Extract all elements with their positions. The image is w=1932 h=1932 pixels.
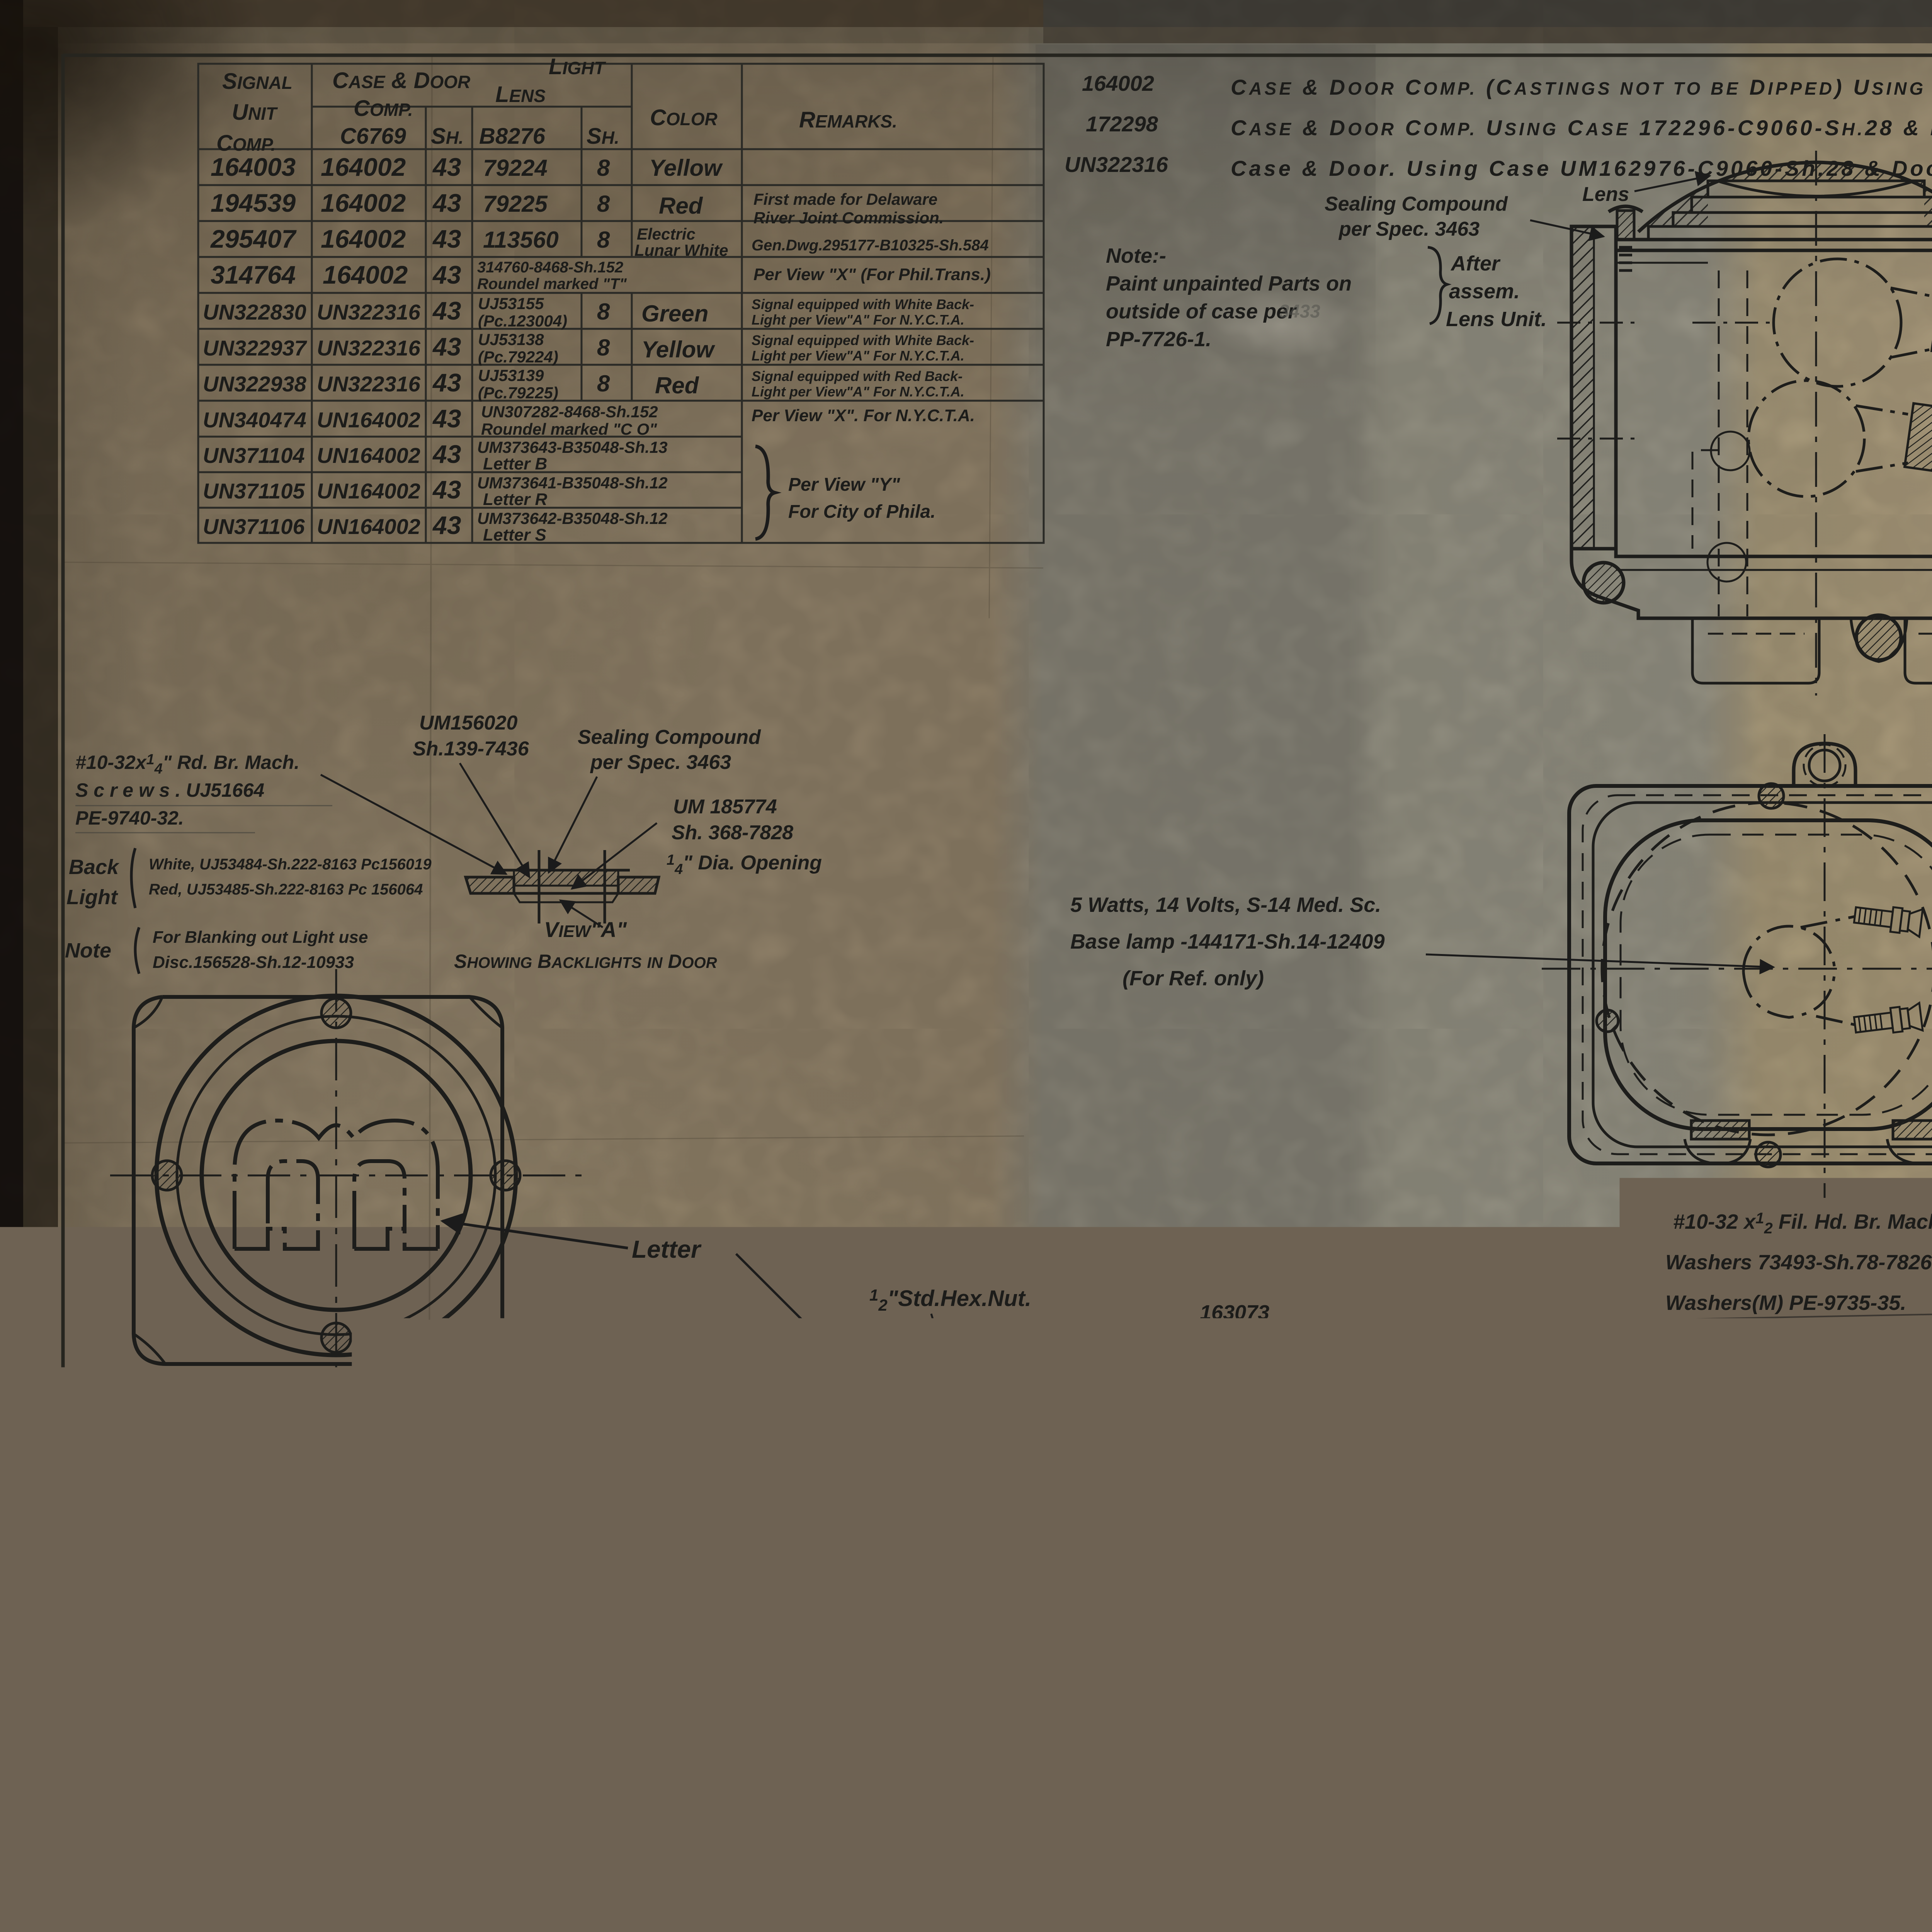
svg-text:PE-9740-32.: PE-9740-32. (75, 807, 184, 829)
svg-text:Lens Unit.: Lens Unit. (1446, 308, 1547, 331)
svg-text:COMP.: COMP. (216, 131, 276, 156)
svg-text:8: 8 (597, 155, 610, 181)
svg-text:43: 43 (432, 224, 461, 253)
svg-text:LENS: LENS (495, 82, 546, 107)
svg-text:Per View "X". For N.Y.C.T.A.: Per View "X". For N.Y.C.T.A. (752, 406, 975, 425)
svg-text:79225: 79225 (483, 191, 548, 217)
svg-text:UJ53139: UJ53139 (478, 366, 544, 384)
svg-text:Sh. 368-7828: Sh. 368-7828 (672, 821, 793, 844)
svg-text:516"x1" Rd.Hd.I.Rivets: 516"x1" Rd.Hd.I.Rivets (974, 1885, 1205, 1913)
svg-text:Roundel marked "T": Roundel marked "T" (477, 276, 627, 293)
svg-text:(Pc.79225): (Pc.79225) (478, 384, 558, 402)
svg-text:Chain added.: Chain added. (67, 1886, 82, 1932)
svg-text:Letter S: Letter S (483, 526, 546, 544)
svg-text:outside of case per: outside of case per (1106, 300, 1297, 323)
svg-text:43: 43 (432, 189, 461, 217)
svg-text:UN340474: UN340474 (203, 408, 306, 432)
svg-text:UN322316: UN322316 (317, 372, 421, 396)
svg-text:Sealing Compound: Sealing Compound (578, 726, 761, 748)
svg-text:UM 185774: UM 185774 (673, 796, 777, 818)
svg-text:43: 43 (432, 368, 461, 397)
svg-text:Letter B: Letter B (483, 454, 547, 473)
svg-text:295407: 295407 (210, 224, 297, 253)
svg-text:UN371105: UN371105 (203, 479, 305, 503)
svg-text:Red: Red (659, 193, 703, 219)
svg-text:UJ53155: UJ53155 (478, 294, 544, 313)
svg-text:Paint unpainted Parts on: Paint unpainted Parts on (1106, 272, 1352, 295)
svg-text:Sh32-12426: Sh32-12426 (759, 1852, 883, 1877)
svg-text:Signal equipped with White Bac: Signal equipped with White Back- (752, 296, 974, 312)
svg-text:C6769: C6769 (340, 124, 406, 149)
svg-text:(For Ref. only): (For Ref. only) (1122, 967, 1264, 990)
svg-text:8: 8 (597, 371, 610, 396)
svg-text:REMARKS.: REMARKS. (799, 107, 897, 133)
svg-text:43: 43 (432, 475, 461, 504)
svg-text:3433: 3433 (1279, 301, 1320, 322)
svg-text:UN164002: UN164002 (317, 514, 420, 539)
svg-text:M164461: M164461 (1808, 1903, 1898, 1927)
svg-text:Red: Red (655, 372, 699, 398)
svg-text:UN371104: UN371104 (203, 443, 305, 468)
svg-text:UM373646-B35024-Sh.9: UM373646-B35024-Sh.9 (216, 1421, 467, 1446)
svg-text:43: 43 (432, 332, 461, 361)
svg-text:M164398-001: M164398-001 (767, 1819, 905, 1844)
svg-text:For City of Phila.: For City of Phila. (788, 502, 935, 522)
svg-text:164003: 164003 (211, 153, 296, 181)
svg-text:Light per View"A" For N.Y.C.T.: Light per View"A" For N.Y.C.T.A. (752, 348, 964, 364)
svg-text:UM373642-B35048-Sh.12: UM373642-B35048-Sh.12 (477, 509, 668, 527)
svg-text:UN307282-8468-Sh.152: UN307282-8468-Sh.152 (481, 403, 658, 421)
svg-text:Back: Back (69, 855, 120, 879)
svg-text:8: 8 (597, 335, 610, 361)
svg-text:8: 8 (597, 191, 610, 217)
svg-text:After: After (1450, 252, 1501, 275)
svg-text:164002: 164002 (321, 224, 406, 253)
svg-text:UN371106: UN371106 (203, 514, 305, 539)
svg-text:SIGNAL: SIGNAL (222, 69, 293, 94)
svg-text:UN164002: UN164002 (317, 479, 420, 503)
svg-text:194539: 194539 (211, 189, 296, 217)
svg-text:Washers(M) PE-9735-35.: Washers(M) PE-9735-35. (1665, 1291, 1906, 1315)
svg-text:COLOR: COLOR (650, 105, 718, 130)
svg-text:UM156020: UM156020 (419, 712, 517, 734)
svg-text:PP-7726-1.: PP-7726-1. (1106, 328, 1211, 351)
svg-text:43: 43 (432, 260, 461, 289)
svg-text:UN164002: UN164002 (317, 408, 420, 432)
svg-text:43: 43 (432, 153, 461, 181)
svg-text:Washers 73493-Sh.78-7826 & #10: Washers 73493-Sh.78-7826 & #10 Plain S.L… (1665, 1251, 1932, 1274)
svg-text:(Pc.79224): (Pc.79224) (478, 348, 558, 366)
svg-text:79224: 79224 (483, 155, 548, 181)
svg-text:River Joint Commission.: River Joint Commission. (753, 209, 944, 227)
svg-text:164002: 164002 (321, 189, 406, 217)
svg-text:5 Watts, 14 Volts, S-14 Med. S: 5 Watts, 14 Volts, S-14 Med. Sc. (1070, 893, 1381, 917)
svg-text:UM373647-B35024-Sh.9: UM373647-B35024-Sh.9 (176, 1564, 426, 1589)
svg-text:164002: 164002 (323, 260, 408, 289)
svg-text:Sealing Compound: Sealing Compound (61, 1451, 238, 1473)
svg-text:Note:-: Note:- (1106, 244, 1166, 267)
svg-text:assem.: assem. (1449, 280, 1520, 303)
svg-text:For Padlock Chain.: For Padlock Chain. (1925, 1336, 1932, 1359)
svg-text:UM373643-B35048-Sh.13: UM373643-B35048-Sh.13 (477, 438, 668, 456)
svg-text:Lens: Lens (1582, 183, 1629, 206)
svg-text:Roundel marked "C O": Roundel marked "C O" (481, 420, 657, 438)
svg-text:8: 8 (597, 299, 610, 325)
svg-text:Light per View"A" For N.Y.C.T.: Light per View"A" For N.Y.C.T.A. (752, 312, 964, 328)
svg-text:Yellow: Yellow (641, 337, 715, 362)
svg-text:per Spec. 3463: per Spec. 3463 (590, 751, 731, 774)
svg-text:UN322316: UN322316 (1065, 152, 1168, 177)
svg-text:UN322937: UN322937 (203, 336, 308, 360)
svg-text:Light: Light (66, 886, 118, 909)
svg-text:CASE & DOOR COMP. (CASTINGS NO: CASE & DOOR COMP. (CASTINGS NOT TO BE DI… (1231, 75, 1932, 99)
svg-text:8: 8 (597, 227, 610, 253)
svg-text:LIGHT: LIGHT (549, 54, 606, 79)
svg-text:Base lamp -144171-Sh.14-12409: Base lamp -144171-Sh.14-12409 (1070, 930, 1385, 953)
svg-text:Yellow: Yellow (649, 155, 723, 181)
svg-text:Sh.72-12415: Sh.72-12415 (476, 1864, 602, 1888)
svg-text:Electric: Electric (637, 225, 696, 243)
svg-text:314764: 314764 (211, 260, 296, 289)
svg-text:per Spec. 3463: per Spec. 3463 (1338, 218, 1480, 240)
svg-text:For Blanking out Light use: For Blanking out Light use (153, 928, 368, 947)
svg-text:172298: 172298 (1086, 112, 1158, 136)
svg-text:Disc.156528-Sh.12-10933: Disc.156528-Sh.12-10933 (153, 953, 354, 972)
svg-text:Sh.128-7436: Sh.128-7436 (530, 1420, 647, 1443)
svg-text:14" Dia. Opening: 14" Dia. Opening (667, 852, 822, 878)
svg-text:#10-32 x12 Fil. Hd. Br. Mach.: #10-32 x12 Fil. Hd. Br. Mach. Scs. PE-97… (1673, 1210, 1932, 1237)
svg-text:43: 43 (432, 404, 461, 433)
svg-text:Letter R: Letter R (483, 490, 547, 509)
svg-text:UM 129899: UM 129899 (540, 1395, 644, 1417)
svg-text:COMP.: COMP. (354, 96, 413, 121)
svg-text:UM373641-B35048-Sh.12: UM373641-B35048-Sh.12 (477, 474, 668, 492)
svg-text:Gen.Dwg.295177-B10325-Sh.584: Gen.Dwg.295177-B10325-Sh.584 (752, 237, 989, 254)
svg-text:43: 43 (432, 296, 461, 325)
svg-text:314760-8468-Sh.152: 314760-8468-Sh.152 (477, 259, 623, 276)
svg-text:Letter: Letter (632, 1235, 702, 1263)
svg-text:CASE & DOOR: CASE & DOOR (332, 68, 470, 93)
svg-text:12"Std.Hex.Nut.: 12"Std.Hex.Nut. (869, 1286, 1031, 1314)
svg-text:SH.: SH. (431, 124, 464, 149)
svg-text:UN322830: UN322830 (203, 300, 306, 324)
svg-text:UNIT: UNIT (232, 100, 278, 125)
svg-text:164002: 164002 (321, 153, 406, 181)
svg-text:SH. 197 - 8034: SH. 197 - 8034 (1175, 1327, 1316, 1350)
svg-text:Note: Note (65, 939, 111, 962)
svg-text:113560: 113560 (483, 227, 559, 253)
svg-text:CASE & DOOR COMP. USING CASE 1: CASE & DOOR COMP. USING CASE 172296-C906… (1231, 116, 1932, 140)
svg-text:Case: Case (611, 1332, 665, 1357)
svg-text:43: 43 (432, 511, 461, 539)
svg-text:Sealing Compound: Sealing Compound (1325, 193, 1508, 215)
svg-text:Red, UJ53485-Sh.222-8163 Pc 1: Red, UJ53485-Sh.222-8163 Pc 156064 (149, 881, 423, 898)
svg-text:164002: 164002 (1082, 71, 1154, 95)
svg-text:Lunar White: Lunar White (634, 241, 728, 259)
svg-text:SH.: SH. (587, 124, 619, 149)
svg-text:Sh.139-7436: Sh.139-7436 (413, 738, 529, 760)
svg-text:Light per View"A" For N.Y.C.T.: Light per View"A" For N.Y.C.T.A. (752, 384, 964, 400)
svg-text:Door: Door (1284, 1854, 1337, 1879)
svg-text:UN322316: UN322316 (317, 300, 421, 324)
svg-text:UN164002: UN164002 (317, 443, 420, 468)
svg-text:163073: 163073 (1200, 1301, 1269, 1324)
svg-text:UJ53138: UJ53138 (478, 330, 544, 349)
svg-text:Signal equipped with White Bac: Signal equipped with White Back- (752, 332, 974, 348)
svg-text:UN322316: UN322316 (317, 336, 421, 360)
svg-text:UN322938: UN322938 (203, 372, 307, 396)
svg-text:S c r e w s . UJ51664: S c r e w s . UJ51664 (75, 779, 264, 801)
svg-text:Signal equipped with Red Back-: Signal equipped with Red Back- (752, 368, 963, 384)
svg-text:(Pc.123004): (Pc.123004) (478, 312, 567, 330)
svg-text:43: 43 (432, 440, 461, 468)
svg-text:Green: Green (641, 301, 708, 327)
svg-text:White, UJ53484-Sh.222-8163 Pc: White, UJ53484-Sh.222-8163 Pc156019 (149, 856, 432, 873)
svg-text:Per View "X" (For Phil.Trans.): Per View "X" (For Phil.Trans.) (753, 265, 991, 284)
svg-text:Per View "Y": Per View "Y" (788, 474, 900, 495)
svg-text:UM 314763: UM 314763 (486, 1831, 598, 1855)
svg-text:First made for Delaware: First made for Delaware (753, 190, 937, 208)
svg-text:B8276: B8276 (479, 124, 546, 149)
